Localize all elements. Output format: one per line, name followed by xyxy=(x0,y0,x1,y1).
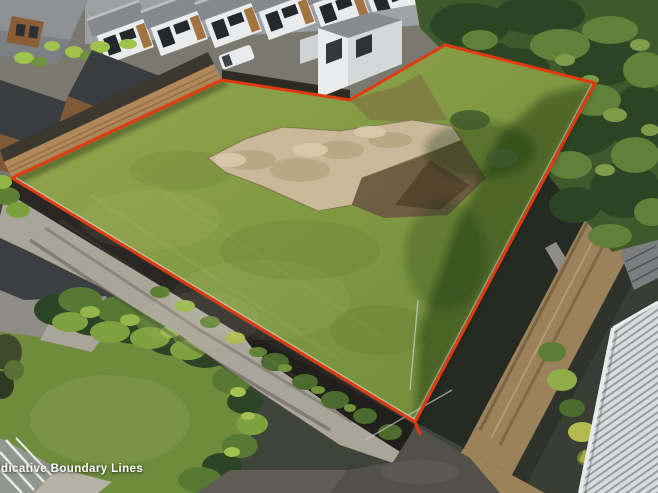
watermark-label: Indicative Boundary Lines xyxy=(0,463,143,475)
aerial-photo-canvas xyxy=(0,0,658,493)
aerial-photo: Indicative Boundary Lines xyxy=(0,0,658,493)
